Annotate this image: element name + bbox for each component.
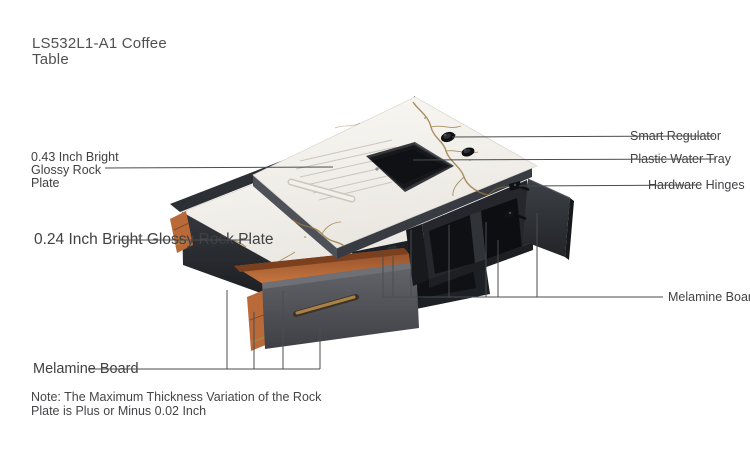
label-plastic-water-tray: Plastic Water Tray — [630, 153, 731, 166]
label-rock-plate-0-43: 0.43 Inch Bright Glossy Rock Plate — [31, 151, 133, 190]
product-title: LS532L1-A1 Coffee Table — [32, 36, 167, 68]
label-smart-regulator: Smart Regulator — [630, 130, 721, 143]
label-hardware-hinges: Hardware Hinges — [648, 179, 745, 192]
label-rock-plate-0-24: 0.24 Inch Bright Glossy Rock Plate — [34, 231, 274, 248]
label-melamine-board-left: Melamine Board — [33, 361, 139, 377]
product-diagram-canvas: LS532L1-A1 Coffee Table 0.43 Inch Bright… — [0, 0, 750, 450]
label-melamine-board-right: Melamine Board — [668, 291, 750, 304]
open-drawer — [234, 248, 419, 351]
tolerance-note: Note: The Maximum Thickness Variation of… — [31, 391, 343, 418]
